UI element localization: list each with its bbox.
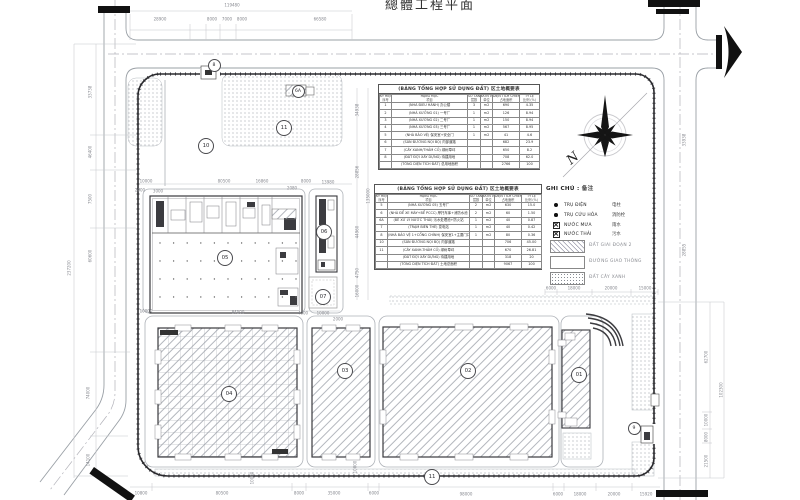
table-row: 5(NHÀ XƯỞNG 05) 五号厂2m263015.0 <box>376 202 542 209</box>
legend-area-label: ĐẤT GIAI ĐOẠN 2 <box>589 243 632 248</box>
table-row: 11(CÂY XANH-THẢM CỎ) 绿树草坪67026.81 <box>376 247 542 254</box>
table-cell: 5 <box>376 202 388 209</box>
table-cell: (NHÀ XƯỞNG 03) 三号厂 <box>392 124 468 131</box>
legend-label-zh: 雨水 <box>612 222 621 228</box>
table-cell: m2 <box>483 232 495 239</box>
table-header-cell: TỶ LỆ比例 (%) <box>522 195 542 202</box>
table-header-cell: SỐ TẦNG层数 <box>470 195 483 202</box>
table-cell: 2 <box>470 202 483 209</box>
table-row: 4(NHÀ XƯỞNG 03) 三号厂1m25678.95 <box>380 124 540 131</box>
transformer-pad-07 <box>309 277 337 308</box>
legend-area-label: ĐƯỜNG GIAO THÔNG <box>589 259 642 264</box>
table-cell <box>470 247 483 254</box>
legend-symbol-row: TRỤ ĐIỆN电柱 <box>548 201 621 209</box>
table-cell: 7 <box>380 147 392 154</box>
table-cell: 670 <box>495 247 522 254</box>
gate-9 <box>641 426 653 443</box>
table-cell: 1 <box>468 132 481 139</box>
table-cell: 1.50 <box>522 210 542 217</box>
table-cell: 3 <box>380 117 392 124</box>
table-cell <box>481 154 493 161</box>
road-marker-top-right <box>648 0 700 7</box>
legend-title-vi: GHI CHÚ : <box>546 186 580 192</box>
table-header-cell: KÝ HIỆU序号 <box>380 95 392 102</box>
dot-small-icon <box>554 213 558 217</box>
table-cell: 8 <box>380 154 392 161</box>
table-row: 2(NHÀ XƯỞNG 01) 一号厂1m21268.94 <box>380 110 540 117</box>
building-02 <box>380 324 555 460</box>
table-cell: 1 <box>468 124 481 131</box>
road-marker-top-left <box>98 6 130 13</box>
table-row: 7(CÂY XANH/THẢM CỎ) 绿树草坪6508.2 <box>380 147 540 154</box>
table-header-cell: DIỆN TÍCH CHIẾM ĐẤT占地面积 <box>495 195 522 202</box>
table-cell: (SÂN ĐƯỜNG NỘI BỘ) 内部道路 <box>392 139 468 146</box>
table-cell: m2 <box>481 124 493 131</box>
building-04 <box>155 325 300 460</box>
table-cell: 1 <box>468 117 481 124</box>
table-cell: 2766 <box>493 161 520 168</box>
table-header-cell: DIỆN TÍCH CHIẾM ĐẤT占地面积 <box>493 95 520 102</box>
north-arrow <box>577 95 633 157</box>
table-cell <box>470 239 483 246</box>
table-row: 6(SÂN ĐƯỜNG NỘI BỘ) 内部道路68223.9 <box>380 139 540 146</box>
table-cell: 1 <box>468 110 481 117</box>
table-cell: 1 <box>470 232 483 239</box>
table-cell: (NHÀ BẢO VỆ 1+CỔNG CHÍNH) 保安室1+主要门口 <box>388 232 470 239</box>
table-cell: (NHÀ ĐỂ XE MÁY+BỂ PCCC) 摩托车库+消防水池 <box>388 210 470 217</box>
table-header-cell: ĐƠN VỊ单位 <box>483 195 495 202</box>
legend-symbol-row: NƯỚC THẢI污水 <box>548 230 621 238</box>
legend-area-label: ĐẤT CÂY XANH <box>589 275 626 280</box>
building-05 <box>150 196 302 313</box>
table-cell: 4.6 <box>520 132 540 139</box>
legend-swatch-stipple <box>550 272 585 285</box>
building-06 <box>316 196 337 272</box>
legend-swatch-road <box>550 256 585 269</box>
table-cell: 650 <box>493 147 520 154</box>
table-cell: (ĐẤT ĐỢI XÂY DỰNG) 待建用地 <box>392 154 468 161</box>
table-header-cell: TỶ LỆ比例 (%) <box>520 95 540 102</box>
table-header-cell: SỐ TẦNG层数 <box>468 95 481 102</box>
table-cell: 682 <box>493 139 520 146</box>
table-cell <box>481 161 493 168</box>
road-marker-bottom-right <box>656 490 708 497</box>
table-cell <box>376 261 388 268</box>
table-cell: (TỔNG DIỆN TÍCH ĐẤT) 土地总面积 <box>388 261 470 268</box>
table-cell: 6A <box>376 217 388 224</box>
gate-8 <box>201 66 216 79</box>
table-cell: 8.2 <box>520 147 540 154</box>
compass-n-label: N <box>563 149 583 169</box>
table-cell: m2 <box>483 217 495 224</box>
table-cell <box>481 147 493 154</box>
table-title: (BẢNG TỔNG HỢP SỬ DỤNG ĐẤT) 区土地概要表 <box>379 85 539 94</box>
table-cell: 706 <box>495 239 522 246</box>
table-cell: (TRẠM BIẾN THẾ) 变电站 <box>388 224 470 231</box>
table-cell: 26.81 <box>522 247 542 254</box>
legend-label-vi: TRỤ ĐIỆN <box>564 203 612 208</box>
table-cell: 23.9 <box>520 139 540 146</box>
table-cell: 8.94 <box>520 110 540 117</box>
legend-label-zh: 污水 <box>612 231 621 237</box>
building-03 <box>312 325 370 460</box>
road-marker-bottom-left <box>89 467 135 500</box>
table-cell <box>380 161 392 168</box>
table-cell: 567 <box>493 124 520 131</box>
legend-swatch-hatch <box>550 240 585 253</box>
table-cell: 0.87 <box>522 217 542 224</box>
table-cell: 9067 <box>495 261 522 268</box>
table-cell: 100 <box>520 161 540 168</box>
table-cell: m2 <box>481 132 493 139</box>
dot-large-icon <box>554 203 558 207</box>
table-row: 6A(BỂ XỬ LÝ NƯỚC THẢI) 污水处理池+防火站1m2400.8… <box>376 217 542 224</box>
table-cell: 1 <box>470 217 483 224</box>
table-cell: 3 <box>468 102 481 109</box>
table-cell: 20 <box>522 254 542 261</box>
table-cell: 1 <box>380 102 392 109</box>
table-cell: (NHÀ BẢO VỆ) 保安室+安全门 <box>392 132 468 139</box>
table-cell: 150 <box>493 117 520 124</box>
legend-title-zh: 备注 <box>582 186 594 192</box>
table-cell: (CÂY XANH-THẢM CỎ) 绿树草坪 <box>388 247 470 254</box>
table-cell: 100 <box>522 261 542 268</box>
table-header-cell: HẠNG MỤC项目 <box>388 195 470 202</box>
table-cell: 2 <box>380 110 392 117</box>
table-cell: (ĐẤT ĐỢI XÂY DỰNG) 待建用地 <box>388 254 470 261</box>
table-cell: 62.0 <box>520 154 540 161</box>
table-cell: m2 <box>483 224 495 231</box>
table-cell: 80 <box>495 232 522 239</box>
table-cell: (SÂN ĐƯỜNG NỘI BỘ) 内部道路 <box>388 239 470 246</box>
table-cell <box>483 247 495 254</box>
table-cell: (TỔNG DIỆN TÍCH ĐẤT) 总用地面积 <box>392 161 468 168</box>
table-cell: 1 <box>470 224 483 231</box>
table-cell: 10 <box>376 239 388 246</box>
table-cell: m2 <box>481 102 493 109</box>
table-cell: (NHÀ XƯỞNG 05) 五号厂 <box>388 202 470 209</box>
table-cell: 45.00 <box>522 239 542 246</box>
table-header-cell: ĐƠN VỊ单位 <box>481 95 493 102</box>
table-cell: 4.35 <box>520 102 540 109</box>
table-cell: 60 <box>495 210 522 217</box>
table-cell: 2 <box>470 210 483 217</box>
legend: GHI CHÚ : 备注 TRỤ ĐIỆN电柱TRỤ CỨU HỎA消防栓NƯỚ… <box>546 184 664 192</box>
table-cell: 6 <box>376 210 388 217</box>
table-cell <box>483 254 495 261</box>
legend-label-zh: 消防栓 <box>612 212 625 218</box>
table-cell <box>483 239 495 246</box>
table-cell: 8.95 <box>520 124 540 131</box>
table-cell: 126 <box>493 110 520 117</box>
road-marker-top-right-2 <box>656 9 689 14</box>
table-row: 1(NHÀ ĐIỀU HÀNH) 办公楼3m26904.35 <box>380 102 540 109</box>
legend-label-zh: 电柱 <box>612 202 621 208</box>
table-cell: 318 <box>495 254 522 261</box>
table-cell <box>483 261 495 268</box>
table-cell: 6 <box>380 139 392 146</box>
table-cell <box>470 261 483 268</box>
table-row: 8(ĐẤT ĐỢI XÂY DỰNG) 待建用地70862.0 <box>380 154 540 161</box>
table-cell: 41 <box>493 132 520 139</box>
legend-label-vi: NƯỚC MƯA <box>564 223 612 228</box>
table-row: 7(TRẠM BIẾN THẾ) 变电站1m2400.42 <box>376 224 542 231</box>
table-cell: m2 <box>481 110 493 117</box>
table-cell: 40 <box>495 224 522 231</box>
legend-symbol-row: TRỤ CỨU HỎA消防栓 <box>548 211 625 219</box>
table-cell: 0.42 <box>522 224 542 231</box>
table-cell: m2 <box>483 210 495 217</box>
land-use-table-2: (BẢNG TỔNG HỢP SỬ DỤNG ĐẤT) 区土地概要表KÝ HIỆ… <box>374 184 542 270</box>
table-cell: 5 <box>380 132 392 139</box>
table-cell: 0.36 <box>522 232 542 239</box>
table-cell: 630 <box>495 202 522 209</box>
table-header-cell: KÝ HIỆU序号 <box>376 195 388 202</box>
table-cell: 8.94 <box>520 117 540 124</box>
table-cell <box>468 147 481 154</box>
table-cell: 690 <box>493 102 520 109</box>
legend-title: GHI CHÚ : 备注 <box>546 184 664 192</box>
table-cell: 708 <box>493 154 520 161</box>
table-cell: 4 <box>380 124 392 131</box>
direction-arrow-right <box>724 26 742 78</box>
box-x-icon <box>553 231 560 238</box>
boundary-box <box>651 394 659 406</box>
table-cell: m2 <box>481 117 493 124</box>
table-cell: 15.0 <box>522 202 542 209</box>
table-cell: 8 <box>376 232 388 239</box>
table-row: (ĐẤT ĐỢI XÂY DỰNG) 待建用地31820 <box>376 254 542 261</box>
table-row: 10(SÂN ĐƯỜNG NỘI BỘ) 内部道路70645.00 <box>376 239 542 246</box>
table-row: (TỔNG DIỆN TÍCH ĐẤT) 土地总面积9067100 <box>376 261 542 268</box>
building-01 <box>558 330 590 428</box>
table-cell <box>481 139 493 146</box>
compass-rose: N <box>563 93 647 177</box>
table-header-cell: HẠNG MỤC项目 <box>392 95 468 102</box>
land-use-table-1: (BẢNG TỔNG HỢP SỬ DỤNG ĐẤT) 区土地概要表KÝ HIỆ… <box>378 84 540 170</box>
site-plan-sheet: N 總體工程平面 (BẢNG TỔNG HỢP SỬ DỤNG ĐẤT) 区土地… <box>0 0 800 500</box>
table-row: 3(NHÀ XƯỞNG 02) 二号厂1m21508.94 <box>380 117 540 124</box>
table-cell <box>468 161 481 168</box>
table-cell: (CÂY XANH/THẢM CỎ) 绿树草坪 <box>392 147 468 154</box>
sheet-title: 總體工程平面 <box>385 0 545 13</box>
table-cell: m2 <box>483 202 495 209</box>
curved-road-feature <box>586 314 623 346</box>
table-cell: (NHÀ XƯỞNG 01) 一号厂 <box>392 110 468 117</box>
legend-label-vi: TRỤ CỨU HỎA <box>564 213 612 218</box>
table-cell: 11 <box>376 247 388 254</box>
table-row: 6(NHÀ ĐỂ XE MÁY+BỂ PCCC) 摩托车库+消防水池2m2601… <box>376 210 542 217</box>
legend-symbol-row: NƯỚC MƯA雨水 <box>548 221 621 229</box>
table-cell <box>376 254 388 261</box>
road-marker-right-bar <box>716 35 722 69</box>
table-cell: 7 <box>376 224 388 231</box>
box-x-icon <box>553 222 560 229</box>
table-row: 8(NHÀ BẢO VỆ 1+CỔNG CHÍNH) 保安室1+主要门口1m28… <box>376 232 542 239</box>
table-row: 5(NHÀ BẢO VỆ) 保安室+安全门1m2414.6 <box>380 132 540 139</box>
table-cell: 40 <box>495 217 522 224</box>
table-cell <box>468 139 481 146</box>
table-cell: (BỂ XỬ LÝ NƯỚC THẢI) 污水处理池+防火站 <box>388 217 470 224</box>
table-cell: (NHÀ XƯỞNG 02) 二号厂 <box>392 117 468 124</box>
legend-label-vi: NƯỚC THẢI <box>564 232 612 237</box>
table-row: (TỔNG DIỆN TÍCH ĐẤT) 总用地面积2766100 <box>380 161 540 168</box>
table-cell: (NHÀ ĐIỀU HÀNH) 办公楼 <box>392 102 468 109</box>
table-cell <box>470 254 483 261</box>
table-title: (BẢNG TỔNG HỢP SỬ DỤNG ĐẤT) 区土地概要表 <box>375 185 541 194</box>
table-cell <box>468 154 481 161</box>
